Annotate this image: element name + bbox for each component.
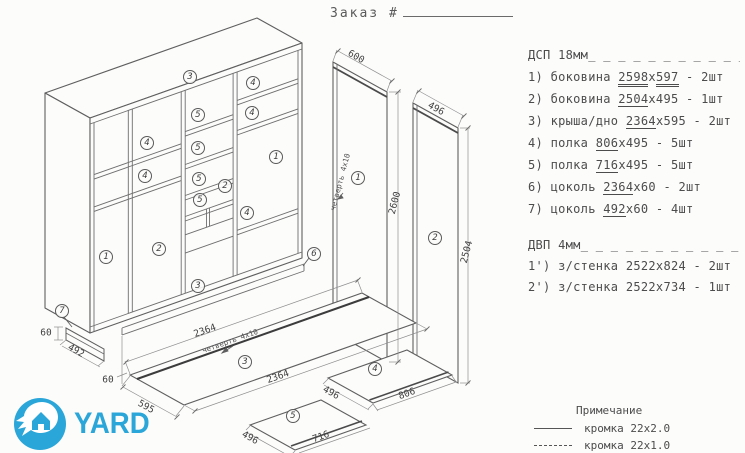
callout-plinth-side: 7 — [55, 304, 69, 318]
dvp-header: ДВП 4мм_ _ _ _ _ _ _ _ _ _ _ — [528, 234, 740, 256]
order-number-blank — [403, 4, 513, 17]
callout-shelf: 5 — [191, 108, 205, 122]
legend-solid-edge: кромка 22x2.0 — [528, 420, 740, 437]
callout-plinth: 6 — [307, 247, 321, 261]
notes-title: Примечание — [576, 402, 740, 420]
callout-panel-2: 2 — [428, 231, 442, 245]
callout-panel-3: 3 — [238, 355, 252, 369]
dvp-item-2: 2') з/стенка 2522x734 - 1шт — [528, 277, 740, 298]
callout-top-panel: 3 — [183, 70, 197, 84]
parts-list: ДСП 18мм_ _ _ _ _ _ _ _ _ _ _ 1) боковин… — [528, 44, 740, 298]
part-item-3: 3) крыша/дно 2364x595 - 2шт — [528, 110, 740, 132]
callout-partition: 2 — [218, 179, 232, 193]
dsp-header: ДСП 18мм_ _ _ _ _ _ _ _ _ _ _ — [528, 44, 740, 66]
part-item-4: 4) полка 806x495 - 5шт — [528, 132, 740, 154]
order-number-header: Заказ # — [330, 4, 513, 21]
dvp-item-1: 1') з/стенка 2522x824 - 2шт — [528, 256, 740, 277]
callout-shelf: 4 — [245, 106, 259, 120]
dsp-header-label: ДСП 18мм — [528, 48, 588, 62]
part-item-2: 2) боковина 2504x495 - 1шт — [528, 88, 740, 110]
yard-logo: YARD — [12, 396, 156, 452]
callout-panel-1: 1 — [351, 171, 365, 185]
callout-shelf: 5 — [192, 172, 206, 186]
dvp-header-label: ДВП 4мм — [528, 238, 581, 252]
yard-logo-circle-spacer — [12, 396, 68, 452]
callout-shelf: 4 — [246, 76, 260, 90]
callout-shelf: 5 — [191, 141, 205, 155]
dvp-header-rule: _ _ _ _ _ _ _ _ _ _ _ — [581, 238, 739, 252]
callout-shelf: 4 — [140, 136, 154, 150]
order-label: Заказ # — [330, 6, 399, 21]
notes-legend: Примечание кромка 22x2.0 кромка 22x1.0 — [528, 402, 740, 453]
callout-panel-5: 5 — [286, 409, 300, 423]
order-drawing-sheet: Заказ # 3 4 4 5 4 5 1 4 5 2 5 4 1 2 3 6 … — [0, 0, 745, 453]
callout-partition: 2 — [152, 242, 166, 256]
part-item-5: 5) полка 716x495 - 5шт — [528, 154, 740, 176]
legend-dashed-edge: кромка 22x1.0 — [528, 437, 740, 453]
callout-side: 1 — [99, 250, 113, 264]
callout-shelf: 5 — [193, 193, 207, 207]
callout-bottom: 3 — [191, 279, 205, 293]
callout-shelf: 4 — [240, 206, 254, 220]
dim-60-side: 60 — [40, 328, 51, 339]
part-item-6: 6) цоколь 2364x60 - 2шт — [528, 176, 740, 198]
dsp-header-rule: _ _ _ _ _ _ _ _ _ _ _ — [588, 48, 740, 62]
dim-60-plinth: 60 — [102, 375, 113, 386]
part-item-7: 7) цоколь 492x60 - 4шт — [528, 198, 740, 220]
dashed-line-sample — [534, 445, 572, 446]
cabinet-left-face — [45, 93, 90, 333]
callout-panel-4: 4 — [368, 362, 382, 376]
callout-side: 1 — [269, 150, 283, 164]
part-item-1: 1) боковина 2598x597 - 2шт — [528, 66, 740, 88]
yard-logo-text: YARD — [74, 407, 150, 441]
callout-shelf: 4 — [138, 169, 152, 183]
solid-line-sample — [534, 428, 572, 429]
